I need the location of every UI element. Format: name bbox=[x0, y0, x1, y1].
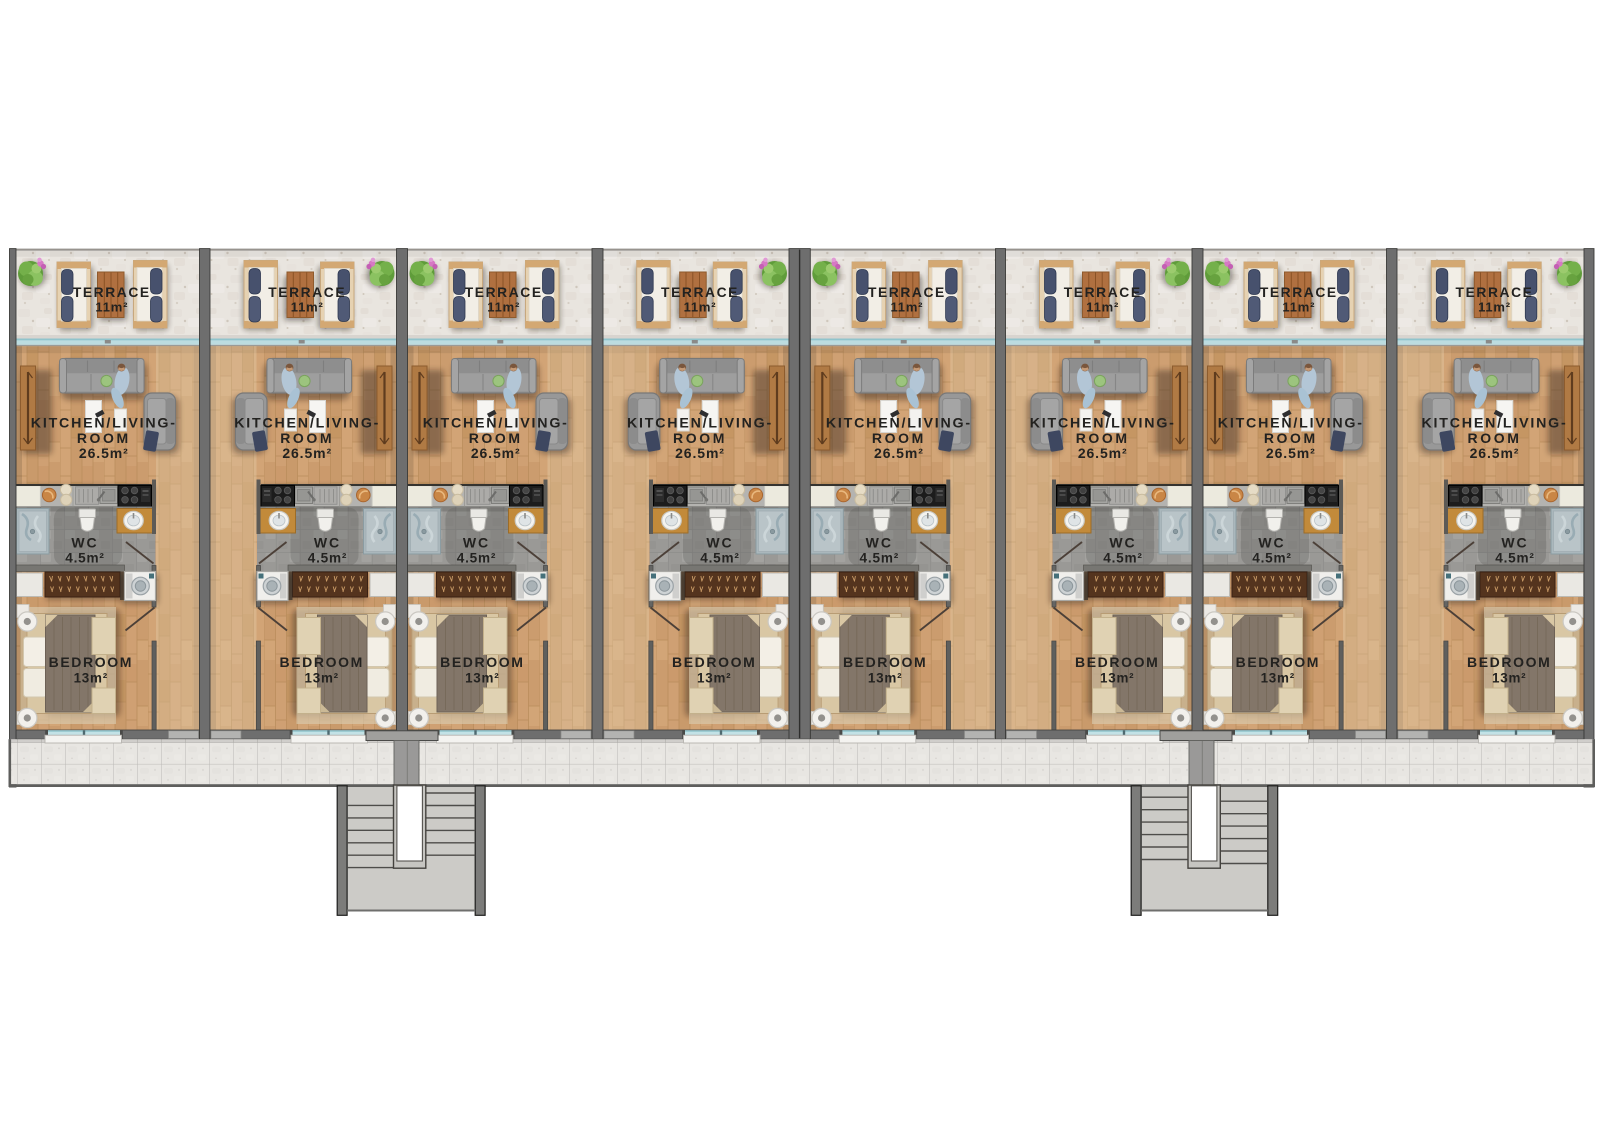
svg-text:26.5m²: 26.5m² bbox=[675, 445, 725, 461]
svg-text:TERRACE: TERRACE bbox=[465, 285, 543, 300]
svg-text:ROOM: ROOM bbox=[1264, 430, 1318, 446]
svg-text:4.5m²: 4.5m² bbox=[1103, 551, 1143, 566]
svg-text:ROOM: ROOM bbox=[469, 430, 523, 446]
svg-text:ROOM: ROOM bbox=[872, 430, 926, 446]
svg-text:4.5m²: 4.5m² bbox=[1252, 551, 1292, 566]
svg-text:11m²: 11m² bbox=[1086, 300, 1119, 315]
svg-text:WC: WC bbox=[706, 535, 733, 551]
svg-text:26.5m²: 26.5m² bbox=[1266, 445, 1316, 461]
svg-text:TERRACE: TERRACE bbox=[661, 285, 739, 300]
svg-text:BEDROOM: BEDROOM bbox=[280, 654, 364, 670]
svg-text:ROOM: ROOM bbox=[77, 430, 131, 446]
svg-text:26.5m²: 26.5m² bbox=[282, 445, 332, 461]
svg-text:13m²: 13m² bbox=[1492, 671, 1526, 686]
svg-text:TERRACE: TERRACE bbox=[1456, 285, 1534, 300]
svg-text:13m²: 13m² bbox=[304, 671, 338, 686]
svg-text:TERRACE: TERRACE bbox=[268, 285, 346, 300]
svg-text:ROOM: ROOM bbox=[1076, 430, 1130, 446]
svg-text:BEDROOM: BEDROOM bbox=[440, 654, 524, 670]
svg-text:TERRACE: TERRACE bbox=[73, 285, 151, 300]
svg-text:26.5m²: 26.5m² bbox=[79, 445, 129, 461]
svg-text:26.5m²: 26.5m² bbox=[874, 445, 924, 461]
svg-text:WC: WC bbox=[1501, 535, 1528, 551]
svg-text:4.5m²: 4.5m² bbox=[308, 551, 348, 566]
svg-text:TERRACE: TERRACE bbox=[1064, 285, 1142, 300]
svg-text:26.5m²: 26.5m² bbox=[1470, 445, 1520, 461]
svg-text:TERRACE: TERRACE bbox=[868, 285, 946, 300]
svg-text:4.5m²: 4.5m² bbox=[860, 551, 900, 566]
svg-text:4.5m²: 4.5m² bbox=[65, 551, 105, 566]
svg-text:WC: WC bbox=[314, 535, 341, 551]
svg-text:13m²: 13m² bbox=[465, 671, 499, 686]
svg-text:WC: WC bbox=[71, 535, 98, 551]
svg-text:BEDROOM: BEDROOM bbox=[672, 654, 756, 670]
svg-text:BEDROOM: BEDROOM bbox=[1075, 654, 1159, 670]
svg-text:11m²: 11m² bbox=[684, 300, 717, 315]
svg-text:11m²: 11m² bbox=[1282, 300, 1315, 315]
svg-text:BEDROOM: BEDROOM bbox=[1236, 654, 1320, 670]
svg-text:ROOM: ROOM bbox=[1468, 430, 1522, 446]
svg-text:BEDROOM: BEDROOM bbox=[843, 654, 927, 670]
svg-text:4.5m²: 4.5m² bbox=[457, 551, 497, 566]
svg-text:13m²: 13m² bbox=[74, 671, 108, 686]
svg-text:BEDROOM: BEDROOM bbox=[1467, 654, 1551, 670]
svg-text:TERRACE: TERRACE bbox=[1260, 285, 1338, 300]
svg-text:13m²: 13m² bbox=[697, 671, 731, 686]
svg-text:WC: WC bbox=[1258, 535, 1285, 551]
svg-text:26.5m²: 26.5m² bbox=[471, 445, 521, 461]
svg-text:WC: WC bbox=[463, 535, 490, 551]
svg-text:11m²: 11m² bbox=[95, 300, 128, 315]
svg-text:26.5m²: 26.5m² bbox=[1078, 445, 1128, 461]
svg-text:11m²: 11m² bbox=[1478, 300, 1511, 315]
svg-text:11m²: 11m² bbox=[487, 300, 520, 315]
svg-text:13m²: 13m² bbox=[868, 671, 902, 686]
svg-text:13m²: 13m² bbox=[1261, 671, 1295, 686]
svg-text:BEDROOM: BEDROOM bbox=[49, 654, 133, 670]
svg-text:ROOM: ROOM bbox=[280, 430, 334, 446]
svg-text:WC: WC bbox=[1109, 535, 1136, 551]
svg-text:11m²: 11m² bbox=[291, 300, 324, 315]
svg-text:ROOM: ROOM bbox=[673, 430, 727, 446]
svg-text:11m²: 11m² bbox=[890, 300, 923, 315]
svg-text:4.5m²: 4.5m² bbox=[1495, 551, 1535, 566]
svg-text:13m²: 13m² bbox=[1100, 671, 1134, 686]
svg-text:WC: WC bbox=[866, 535, 893, 551]
svg-text:4.5m²: 4.5m² bbox=[700, 551, 740, 566]
